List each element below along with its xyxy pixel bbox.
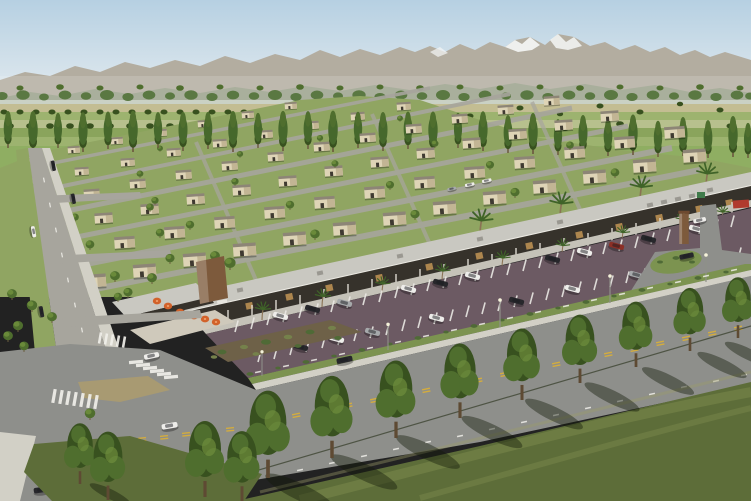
house (364, 186, 385, 201)
treeline-tree (122, 93, 133, 101)
orchard-tree (146, 123, 154, 129)
house (554, 119, 573, 132)
median-shrub (611, 295, 617, 298)
house (111, 137, 124, 146)
house (405, 124, 422, 135)
house (583, 169, 607, 185)
orchard-tree (145, 110, 152, 115)
treeline-tree (669, 92, 679, 99)
orchard-tree (97, 110, 104, 115)
house (462, 137, 481, 150)
house (68, 146, 81, 155)
house (633, 158, 657, 174)
crosswalk-stripe (116, 335, 120, 346)
planting-shrub (306, 330, 315, 335)
house (167, 148, 182, 158)
median-shrub (303, 360, 310, 364)
house (94, 212, 113, 225)
far-tree-speck (97, 86, 104, 91)
house (451, 114, 468, 125)
house (121, 158, 136, 168)
treeline-tree (81, 92, 92, 100)
median-shrub (359, 348, 366, 352)
treeline-tree (626, 93, 637, 101)
median-shrub (583, 300, 590, 304)
patio-umbrella (153, 298, 161, 305)
far-tree-speck (176, 85, 184, 91)
treeline-tree (227, 91, 239, 100)
far-tree-speck (657, 86, 664, 91)
median-shrub (443, 331, 449, 334)
roadside-tree (7, 289, 17, 300)
house (564, 146, 585, 161)
treeline-tree (249, 92, 260, 100)
house (397, 102, 412, 112)
treeline-tree (436, 90, 450, 100)
median-shrub (247, 372, 254, 376)
treeline-tree (731, 91, 744, 100)
house (414, 176, 435, 191)
house (533, 179, 557, 195)
orchard-tree (113, 110, 120, 115)
far-tree-speck (696, 84, 704, 90)
median-shrub (331, 355, 337, 358)
treeline-tree (184, 90, 197, 100)
far-tree-speck (497, 86, 504, 91)
orchard-tree (597, 104, 604, 109)
orchard-tree (637, 110, 644, 115)
far-tree-speck (617, 85, 624, 90)
treeline-tree (100, 90, 114, 100)
planting-shrub (295, 344, 302, 348)
house (164, 226, 185, 241)
house (514, 156, 535, 171)
treeline-tree (268, 90, 282, 100)
orchard-tree (161, 110, 168, 115)
treeline-tree (39, 94, 49, 101)
house (324, 165, 343, 178)
house (600, 110, 619, 123)
orchard-tree (193, 110, 200, 115)
patio-umbrella (212, 319, 220, 326)
median-shrub (527, 312, 534, 316)
aerial-rendering-canvas (0, 0, 751, 501)
treeline-tree (206, 93, 217, 101)
island-shrub (657, 260, 663, 263)
house (283, 231, 307, 247)
house (264, 206, 285, 221)
house (213, 139, 228, 149)
entry-monument-tower (678, 211, 689, 244)
patio-umbrella (164, 303, 172, 310)
island-shrub (673, 256, 680, 260)
median-shrub (667, 283, 673, 286)
house (614, 136, 635, 151)
far-tree-speck (217, 85, 224, 90)
house (483, 190, 507, 206)
treeline-tree (585, 92, 596, 100)
far-tree-speck (537, 85, 544, 90)
far-tree-speck (337, 86, 344, 91)
far-tree-speck (377, 85, 384, 90)
house (359, 133, 376, 144)
planting-shrub (328, 326, 336, 330)
island-shrub (689, 260, 695, 263)
house (464, 166, 485, 181)
treeline-tree (290, 93, 301, 101)
orchard-tree (66, 123, 74, 129)
house (497, 105, 514, 116)
median-shrub (275, 367, 281, 370)
orchard-tree (49, 110, 56, 115)
median-shrub (555, 307, 561, 310)
treeline-tree (311, 91, 324, 100)
entrance-sign-red (733, 199, 750, 208)
house (683, 148, 707, 164)
house (370, 156, 389, 169)
far-tree-speck (737, 86, 744, 91)
house (313, 142, 330, 153)
treeline-tree (710, 93, 721, 101)
house (278, 175, 297, 188)
far-tree-speck (17, 86, 24, 91)
house (75, 167, 90, 177)
crosswalk-stripe (122, 336, 126, 347)
house (543, 96, 560, 107)
house (214, 216, 235, 231)
house (233, 242, 257, 258)
orchard-tree (677, 102, 683, 107)
far-tree-speck (137, 85, 144, 90)
house (129, 179, 146, 190)
house (232, 184, 251, 197)
median-shrub (723, 271, 729, 274)
house (285, 102, 298, 111)
entrance-sign-green (697, 192, 705, 198)
planting-shrub (240, 345, 248, 349)
planting-shrub (334, 336, 342, 340)
house (221, 161, 238, 172)
median-shrub (415, 336, 422, 340)
far-tree-speck (296, 84, 304, 90)
house (383, 211, 407, 227)
house (664, 126, 685, 141)
median-shrub (471, 324, 478, 328)
orchard-tree (225, 110, 232, 115)
treeline-tree (417, 92, 428, 100)
orchard-tree (46, 123, 54, 129)
planting-shrub (284, 335, 293, 339)
house (242, 111, 255, 120)
house (186, 193, 205, 206)
patio-umbrella (201, 316, 209, 323)
orchard-tree (717, 108, 724, 113)
house (314, 196, 335, 211)
median-shrub (639, 288, 646, 292)
treeline-tree (520, 90, 533, 100)
treeline-tree (16, 90, 29, 100)
orchard-tree (17, 110, 24, 115)
far-tree-speck (257, 86, 264, 91)
house (114, 236, 135, 251)
treeline-tree (165, 92, 175, 99)
roadside-tree (3, 331, 13, 342)
treeline-tree (604, 90, 618, 100)
roadside-tree (13, 321, 23, 332)
house (267, 152, 284, 163)
aerial-rendering (0, 0, 751, 501)
median-shrub (695, 276, 702, 280)
orchard-tree (517, 106, 524, 111)
far-tree-speck (576, 85, 584, 91)
treeline-tree (688, 90, 701, 100)
planting-shrub (211, 355, 218, 358)
orchard-tree (65, 110, 72, 115)
house (175, 170, 192, 181)
planting-shrub (261, 339, 271, 344)
treeline-tree (59, 91, 72, 100)
far-tree-speck (56, 84, 64, 90)
house (508, 128, 527, 141)
treeline-tree (647, 91, 660, 100)
house (433, 200, 457, 216)
treeline-tree (458, 93, 469, 101)
house (333, 221, 357, 237)
treeline-tree (143, 91, 156, 100)
house (416, 147, 435, 160)
planting-shrub (253, 352, 260, 356)
far-tree-speck (457, 85, 464, 90)
planting-shrub (218, 350, 227, 355)
treeline-tree (563, 91, 576, 100)
